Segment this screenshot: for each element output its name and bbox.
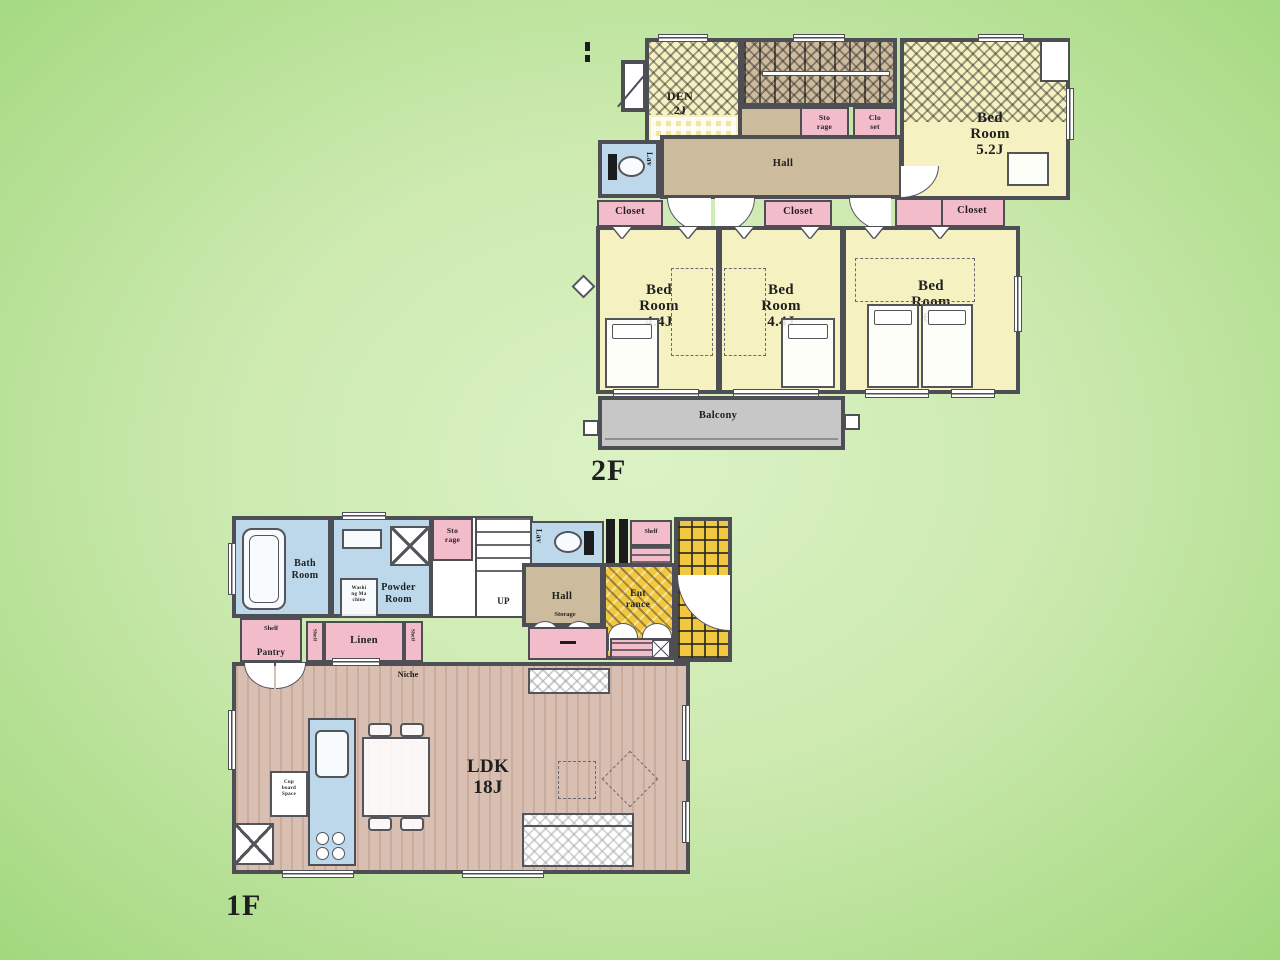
lav-2f-label: Lav xyxy=(644,152,653,166)
linen-label: Linen xyxy=(326,635,402,646)
bathroom-line1: Bath xyxy=(282,558,328,570)
storage-small-label: Sto rage xyxy=(802,114,847,131)
pillow-icon xyxy=(928,310,966,325)
powder-line1: Powder xyxy=(368,582,429,594)
bedroom44b-dashed-outline xyxy=(724,268,766,356)
kitchen-counter xyxy=(308,718,356,866)
ldk-label: LDK 18J xyxy=(450,757,526,798)
toilet-icon xyxy=(618,156,645,177)
bathroom-line2: Room xyxy=(282,570,328,582)
room-powder: Washi ng Ma chine Powder Room xyxy=(330,516,433,618)
bedroom52-label: Bed Room 5.2J xyxy=(940,110,1040,159)
toilet-tank-icon xyxy=(584,531,594,555)
hanger-pipe-icon xyxy=(560,641,576,644)
bed-icon xyxy=(921,304,973,388)
closet-c: Closet xyxy=(895,198,1005,227)
shelf-narrow-left: Shelf xyxy=(306,621,324,662)
kitchen-sink-icon xyxy=(315,730,349,778)
bedroom44a-dashed-outline xyxy=(671,268,713,356)
toilet-icon xyxy=(554,531,582,553)
chair-icon xyxy=(400,817,424,831)
window xyxy=(1066,88,1074,140)
pantry-label: Pantry xyxy=(242,647,300,657)
lavatory-2f: Lav xyxy=(598,140,660,198)
stove-burner-icon xyxy=(316,847,329,860)
sofa-icon xyxy=(522,813,634,867)
sofa-back-line xyxy=(524,825,632,827)
balcony-bracket xyxy=(583,420,599,436)
tv-board-icon xyxy=(528,668,610,694)
chair-icon xyxy=(368,723,392,737)
window xyxy=(342,512,386,520)
pillow-icon xyxy=(874,310,912,325)
closet-small-label: Clo set xyxy=(855,114,895,131)
vent-icon xyxy=(613,227,631,238)
entrance-line1: Ent xyxy=(610,589,666,600)
pantry-shelf-label: Shelf xyxy=(242,625,300,632)
closet-small-line2: set xyxy=(855,123,895,132)
chair-icon xyxy=(400,723,424,737)
bedroom52-line3: 5.2J xyxy=(940,142,1040,158)
storage-note: Storage xyxy=(540,611,590,618)
window xyxy=(682,801,690,843)
window xyxy=(865,389,929,398)
storage-box-icon xyxy=(234,823,274,865)
bedroom6-dashed-outline xyxy=(855,258,975,302)
bedroom52-line2: Room xyxy=(940,126,1040,142)
bedroom52-line1: Bed xyxy=(940,110,1040,126)
shelf-v2-label: Shelf xyxy=(409,629,414,641)
window xyxy=(282,870,354,878)
shoe-closet-x-icon xyxy=(652,640,670,658)
balcony-rail xyxy=(605,438,838,440)
stove-burner-icon xyxy=(332,847,345,860)
chair-icon xyxy=(368,817,392,831)
floor-plan-1f: Bath Room Washi ng Ma chine Powder Room xyxy=(222,505,742,945)
sofa-hatch xyxy=(524,815,632,865)
shelf-v1-label: Shelf xyxy=(311,629,316,641)
bay-window-icon xyxy=(571,274,595,298)
plan-legend-mark xyxy=(585,42,590,51)
window xyxy=(658,34,708,42)
den-label: DEN 2J xyxy=(650,90,710,118)
floor-plan-2f: DEN 2J Sto rage Clo set Bed Roo xyxy=(583,30,1088,500)
lav-1f-label: Lav xyxy=(534,529,543,543)
dining-table-icon xyxy=(362,737,430,817)
washer-space-icon xyxy=(390,526,430,566)
bedroom52-corner-counter xyxy=(1040,40,1070,82)
vent-icon xyxy=(931,227,949,238)
hall-closet xyxy=(528,627,608,660)
pillow-icon xyxy=(612,324,652,339)
toilet-tank-icon xyxy=(608,154,617,180)
den-label-line1: DEN xyxy=(650,90,710,104)
bathtub-icon xyxy=(242,528,286,610)
ldk-line2: 18J xyxy=(450,778,526,799)
window xyxy=(1014,276,1022,332)
closet-b: Closet xyxy=(764,200,832,227)
tv-board-hatch xyxy=(530,670,608,692)
lavatory-1f: Lav xyxy=(530,521,604,565)
cupboard-note: Cup board Space xyxy=(272,780,306,797)
window xyxy=(228,543,236,595)
window xyxy=(332,658,380,666)
storage-1f-line2: rage xyxy=(434,536,471,545)
door-panel xyxy=(619,519,628,565)
entry-shelf-label: Shelf xyxy=(632,529,670,536)
bed-icon xyxy=(605,318,659,388)
entry-shelf: Shelf xyxy=(630,520,672,546)
ldk-line1: LDK xyxy=(450,757,526,778)
powder-label: Powder Room xyxy=(368,582,429,605)
closet-a-label: Closet xyxy=(599,206,661,217)
entrance-label: Ent rance xyxy=(610,589,666,611)
vanity-sink-icon xyxy=(342,529,382,549)
closet-b-label: Closet xyxy=(766,206,830,217)
plan-legend-mark xyxy=(585,55,590,62)
stair-rail xyxy=(762,71,890,76)
cupboard-icon: Cup board Space xyxy=(270,771,308,817)
window xyxy=(978,34,1024,42)
window xyxy=(682,705,690,761)
bed-icon xyxy=(867,304,919,388)
vent-icon xyxy=(735,227,753,238)
vent-icon xyxy=(801,227,819,238)
niche-label: Niche xyxy=(388,670,428,679)
window xyxy=(793,34,845,42)
bathtub-inner xyxy=(249,535,279,603)
entrance-line2: rance xyxy=(610,600,666,611)
window xyxy=(462,870,544,878)
staircase-2f xyxy=(740,38,897,107)
linen-closet: Linen xyxy=(324,621,404,662)
balcony-bracket xyxy=(844,414,860,430)
vent-icon xyxy=(865,227,883,238)
den-label-line2: 2J xyxy=(650,104,710,118)
floor-label-1f: 1F xyxy=(226,889,261,923)
stove-burner-icon xyxy=(316,832,329,845)
pantry: Shelf Pantry xyxy=(240,618,302,662)
door-panel xyxy=(606,519,615,565)
closet-a: Closet xyxy=(597,200,663,227)
room-bathroom: Bath Room xyxy=(232,516,332,618)
storage-small-1f: Sto rage xyxy=(432,518,473,561)
balcony xyxy=(598,396,845,450)
cupboard-note-line3: Space xyxy=(272,792,306,798)
den-door-nook xyxy=(621,60,647,112)
bed-icon xyxy=(781,318,835,388)
storage-small-1f-label: Sto rage xyxy=(434,527,471,544)
floor-plan-canvas: DEN 2J Sto rage Clo set Bed Roo xyxy=(0,0,1280,960)
storage-small-line2: rage xyxy=(802,123,847,132)
hall-1f-label: Hall xyxy=(532,591,592,602)
window xyxy=(228,710,236,770)
pillow-icon xyxy=(788,324,828,339)
window xyxy=(951,389,995,398)
side-table-icon xyxy=(558,761,596,799)
closet-c-label: Closet xyxy=(941,205,1003,216)
vent-icon xyxy=(679,227,697,238)
hall-2f-label: Hall xyxy=(753,158,813,169)
bathroom-label: Bath Room xyxy=(282,558,328,581)
shelf-narrow-right: Shelf xyxy=(404,621,423,662)
floor-label-2f: 2F xyxy=(591,454,626,488)
stove-burner-icon xyxy=(332,832,345,845)
balcony-label: Balcony xyxy=(678,410,758,421)
powder-line2: Room xyxy=(368,594,429,606)
